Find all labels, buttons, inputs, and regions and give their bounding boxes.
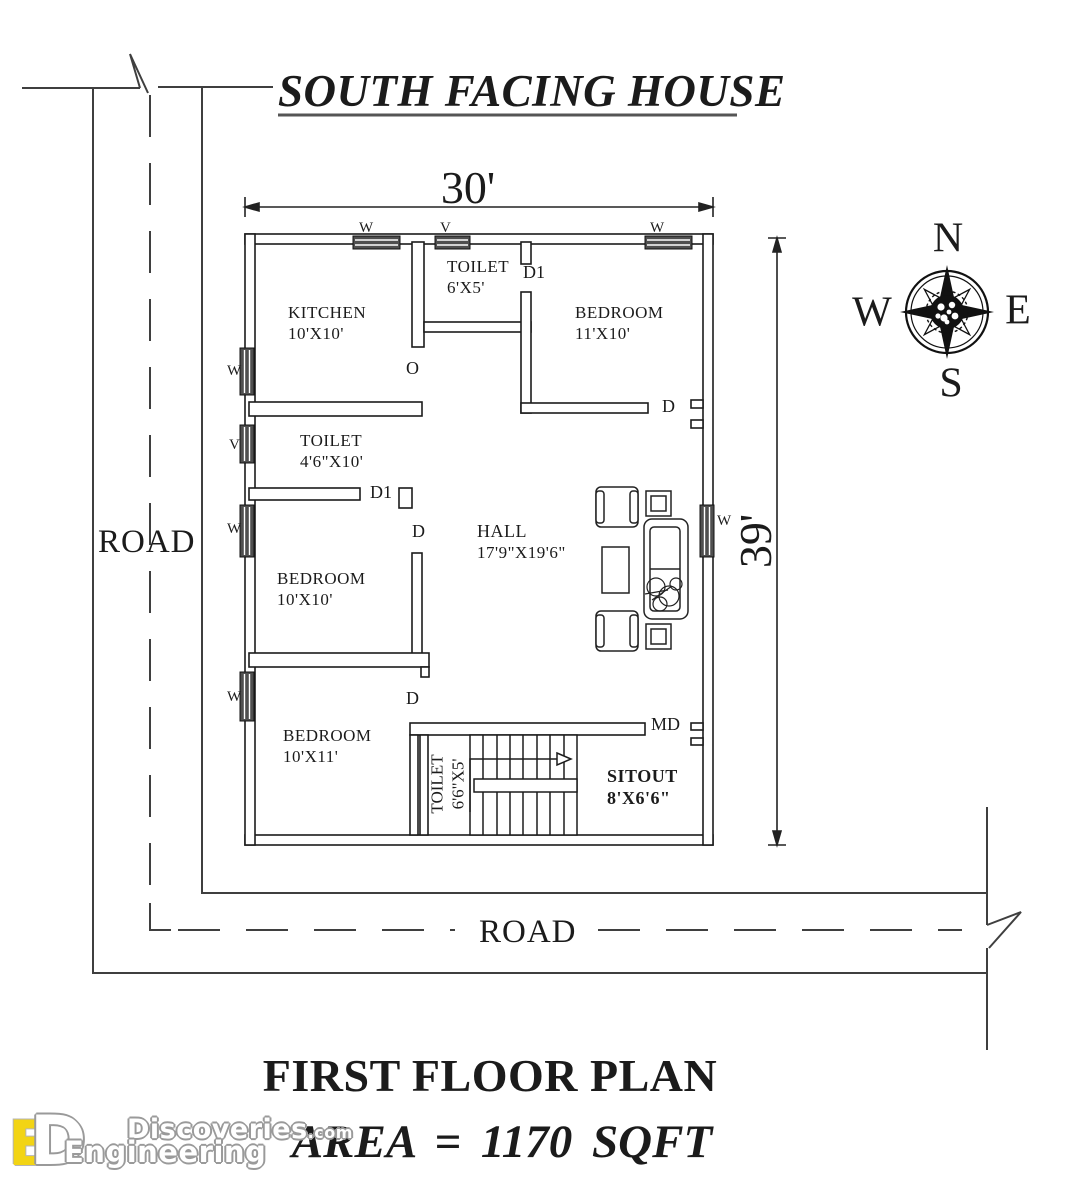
toilet-top-size: 6'X5' xyxy=(447,278,509,299)
window-label-top-1: W xyxy=(359,219,373,237)
compass-east: E xyxy=(1005,285,1031,336)
kitchen-name: KITCHEN xyxy=(288,303,366,324)
window-label-right: W xyxy=(717,512,731,530)
toilet-top-name: TOILET xyxy=(447,257,509,278)
room-label-sitout: SITOUT 8'X6'6" xyxy=(607,766,678,810)
bedroom-middle-size: 10'X10' xyxy=(277,590,366,611)
plan-name: FIRST FLOOR PLAN xyxy=(230,1048,750,1104)
page-title: SOUTH FACING HOUSE xyxy=(278,64,738,119)
room-label-toilet-left: TOILET 4'6"X10' xyxy=(300,431,363,472)
road-label-left: ROAD xyxy=(98,522,196,562)
toilet-door-label-top: D1 xyxy=(523,262,545,284)
window-label-left-2: W xyxy=(227,520,241,538)
ventilator-label-left: V xyxy=(229,436,240,454)
room-label-hall: HALL 17'9"X19'6" xyxy=(477,521,566,564)
toilet-left-name: TOILET xyxy=(300,431,363,452)
room-label-bedroom-middle: BEDROOM 10'X10' xyxy=(277,569,366,610)
bedroom-top-size: 11'X10' xyxy=(575,324,664,345)
compass-north: N xyxy=(933,213,963,264)
bedroom-top-name: BEDROOM xyxy=(575,303,664,324)
main-door-label: MD xyxy=(651,714,680,736)
bedroom-bottom-name: BEDROOM xyxy=(283,726,372,747)
floor-plan-page: SOUTH FACING HOUSE 30' 39' N E W S ROAD … xyxy=(0,0,1080,1180)
door-label-bedroom-middle: D xyxy=(412,521,425,543)
coffee-table xyxy=(602,547,629,593)
toilet-left-size: 4'6"X10' xyxy=(300,452,363,473)
window-label-left-1: W xyxy=(227,362,241,380)
hall-furniture xyxy=(596,487,688,651)
ventilator-label-top: V xyxy=(440,219,451,237)
window-label-top-2: W xyxy=(650,219,664,237)
compass-west: W xyxy=(852,287,892,338)
toilet-bottom-size: 6'6"X5' xyxy=(449,759,470,810)
sitout-name: SITOUT xyxy=(607,766,678,788)
width-dimension: 30' xyxy=(428,160,508,216)
window-label-left-3: W xyxy=(227,688,241,706)
staircase xyxy=(470,735,577,835)
room-label-kitchen: KITCHEN 10'X10' xyxy=(288,303,366,344)
room-label-bedroom-top: BEDROOM 11'X10' xyxy=(575,303,664,344)
toilet-bottom-name: TOILET xyxy=(428,754,449,813)
logo-com-text: .com xyxy=(308,1123,353,1142)
depth-dimension: 39' xyxy=(728,514,784,568)
bedroom-middle-name: BEDROOM xyxy=(277,569,366,590)
sitout-size: 8'X6'6" xyxy=(607,788,678,810)
compass-south: S xyxy=(939,358,962,409)
room-label-toilet-top: TOILET 6'X5' xyxy=(447,257,509,298)
kitchen-size: 10'X10' xyxy=(288,324,366,345)
hall-name: HALL xyxy=(477,521,566,543)
room-label-bedroom-bottom: BEDROOM 10'X11' xyxy=(283,726,372,767)
hall-size: 17'9"X19'6" xyxy=(477,543,566,564)
road-break-right xyxy=(987,912,1021,948)
door-label-bedroom-bottom: D xyxy=(406,688,419,710)
door-label-bedroom-top: D xyxy=(662,396,675,418)
bedroom-bottom-size: 10'X11' xyxy=(283,747,372,768)
road-label-bottom: ROAD xyxy=(479,912,577,952)
toilet-door-label-left: D1 xyxy=(370,482,392,504)
logo-brand-bottom: Engineering xyxy=(64,1135,266,1170)
compass-rose xyxy=(900,265,994,359)
plan-linework xyxy=(0,0,1080,1180)
kitchen-opening-label: O xyxy=(406,358,419,380)
